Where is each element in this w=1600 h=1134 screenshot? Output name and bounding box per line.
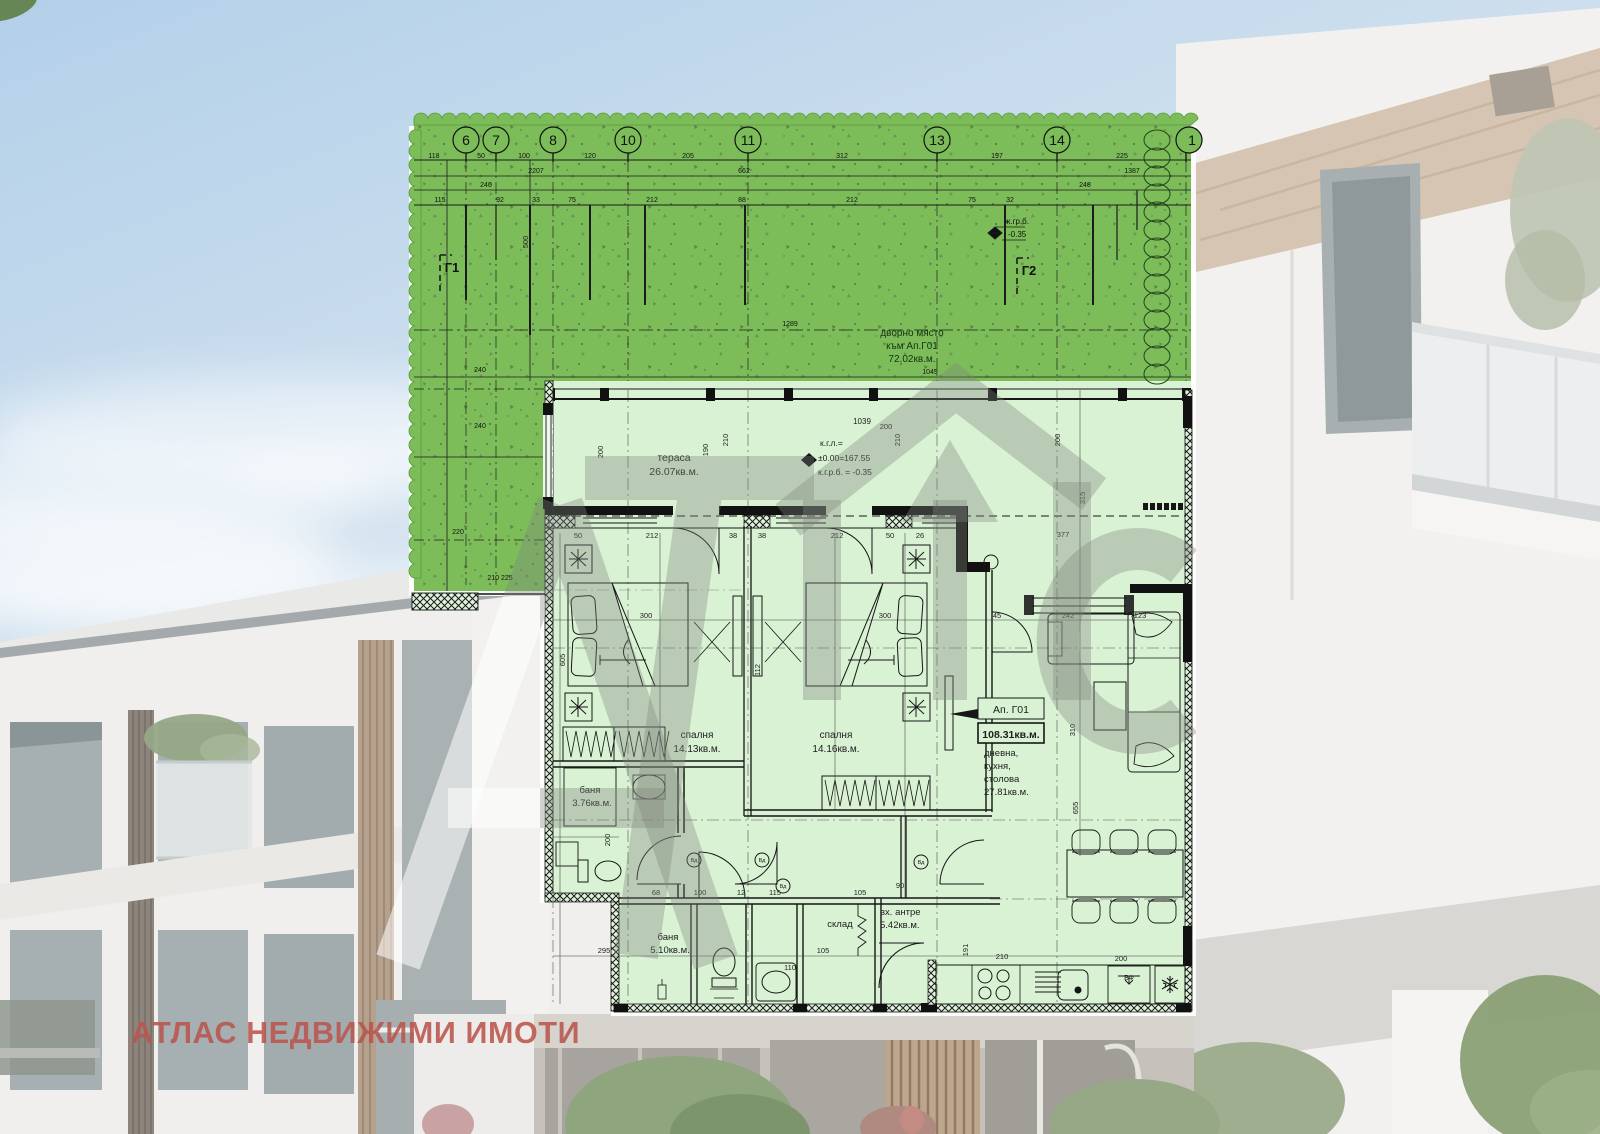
svg-text:7: 7 — [492, 132, 500, 148]
svg-text:Вд: Вд — [759, 858, 767, 864]
svg-text:1387: 1387 — [1124, 168, 1140, 175]
svg-text:212: 212 — [646, 531, 659, 540]
svg-text:50: 50 — [886, 531, 894, 540]
svg-text:212: 212 — [846, 197, 858, 204]
svg-text:300: 300 — [640, 611, 653, 620]
svg-text:26: 26 — [916, 531, 924, 540]
svg-text:240: 240 — [474, 367, 486, 374]
svg-text:205: 205 — [682, 153, 694, 160]
svg-text:14: 14 — [1049, 132, 1065, 148]
svg-text:-0.35: -0.35 — [1008, 230, 1027, 239]
svg-text:38: 38 — [729, 531, 737, 540]
svg-text:220: 220 — [452, 529, 464, 536]
svg-text:605: 605 — [558, 654, 567, 667]
svg-text:Г2: Г2 — [1022, 263, 1037, 278]
svg-text:дворно място: дворно място — [880, 328, 944, 339]
svg-text:108.31кв.м.: 108.31кв.м. — [982, 729, 1040, 741]
svg-text:295: 295 — [598, 946, 611, 955]
svg-text:12: 12 — [737, 888, 745, 897]
svg-text:88: 88 — [738, 197, 746, 204]
svg-text:8: 8 — [549, 132, 557, 148]
svg-text:кухня,: кухня, — [984, 761, 1011, 772]
svg-text:200: 200 — [1115, 954, 1128, 963]
svg-text:500: 500 — [521, 236, 530, 249]
svg-text:92: 92 — [496, 197, 504, 204]
svg-text:45: 45 — [993, 611, 1001, 620]
svg-text:1: 1 — [1188, 132, 1196, 148]
svg-text:210: 210 — [996, 952, 1009, 961]
svg-text:38: 38 — [758, 531, 766, 540]
svg-text:дневна,: дневна, — [984, 748, 1018, 759]
svg-text:190: 190 — [701, 444, 710, 457]
svg-text:312: 312 — [836, 153, 848, 160]
svg-text:1289: 1289 — [782, 321, 798, 328]
svg-text:ж.гр.б.: ж.гр.б. — [1005, 217, 1029, 226]
svg-text:2207: 2207 — [528, 168, 544, 175]
svg-text:спалня: спалня — [820, 730, 853, 741]
svg-text:210: 210 — [721, 434, 730, 447]
svg-text:Ап. Г01: Ап. Г01 — [993, 704, 1029, 716]
svg-text:50: 50 — [477, 153, 485, 160]
svg-text:240: 240 — [474, 423, 486, 430]
svg-text:120: 120 — [584, 153, 596, 160]
svg-text:6: 6 — [462, 132, 470, 148]
svg-text:Вд: Вд — [780, 884, 788, 890]
svg-text:11: 11 — [741, 132, 756, 148]
svg-text:72.02кв.м.: 72.02кв.м. — [888, 354, 935, 365]
svg-text:столова: столова — [984, 774, 1020, 785]
svg-text:105: 105 — [817, 946, 830, 955]
svg-text:14.16кв.м.: 14.16кв.м. — [812, 744, 859, 755]
svg-text:100: 100 — [518, 153, 530, 160]
svg-text:склад: склад — [827, 919, 853, 930]
svg-text:АТЛАС НЕДВИЖИМИ ИМОТИ: АТЛАС НЕДВИЖИМИ ИМОТИ — [131, 1016, 580, 1050]
svg-text:75: 75 — [968, 197, 976, 204]
svg-text:118: 118 — [428, 153, 439, 160]
svg-text:27.81кв.м.: 27.81кв.м. — [984, 787, 1029, 798]
svg-text:105: 105 — [854, 888, 867, 897]
svg-text:вх. антре: вх. антре — [880, 907, 921, 918]
svg-text:към Ап.Г01: към Ап.Г01 — [886, 341, 938, 352]
svg-text:Вд: Вд — [918, 860, 926, 866]
svg-text:123: 123 — [1134, 611, 1147, 620]
svg-text:200: 200 — [603, 834, 612, 847]
svg-text:90: 90 — [896, 881, 904, 890]
svg-text:1049: 1049 — [922, 369, 938, 376]
svg-text:к.г.л.=: к.г.л.= — [820, 438, 843, 448]
svg-text:32: 32 — [1006, 197, 1014, 204]
svg-text:112: 112 — [753, 664, 762, 676]
svg-text:110: 110 — [784, 963, 796, 972]
svg-text:33: 33 — [532, 197, 540, 204]
svg-text:248: 248 — [1079, 182, 1091, 189]
svg-text:13: 13 — [929, 132, 945, 148]
svg-text:Г1: Г1 — [445, 260, 460, 275]
svg-text:225: 225 — [1116, 153, 1128, 160]
svg-text:212: 212 — [646, 197, 658, 204]
svg-text:662: 662 — [738, 168, 750, 175]
svg-text:10: 10 — [620, 132, 636, 148]
svg-text:300: 300 — [879, 611, 892, 620]
svg-text:115: 115 — [434, 197, 445, 204]
svg-text:197: 197 — [991, 153, 1003, 160]
svg-text:75: 75 — [568, 197, 576, 204]
svg-text:240: 240 — [480, 182, 492, 189]
svg-text:5.42кв.м.: 5.42кв.м. — [880, 920, 920, 931]
svg-text:655: 655 — [1071, 802, 1080, 815]
svg-text:1039: 1039 — [853, 417, 871, 426]
svg-text:ВФ: ВФ — [1124, 975, 1134, 982]
svg-text:191: 191 — [961, 944, 970, 957]
